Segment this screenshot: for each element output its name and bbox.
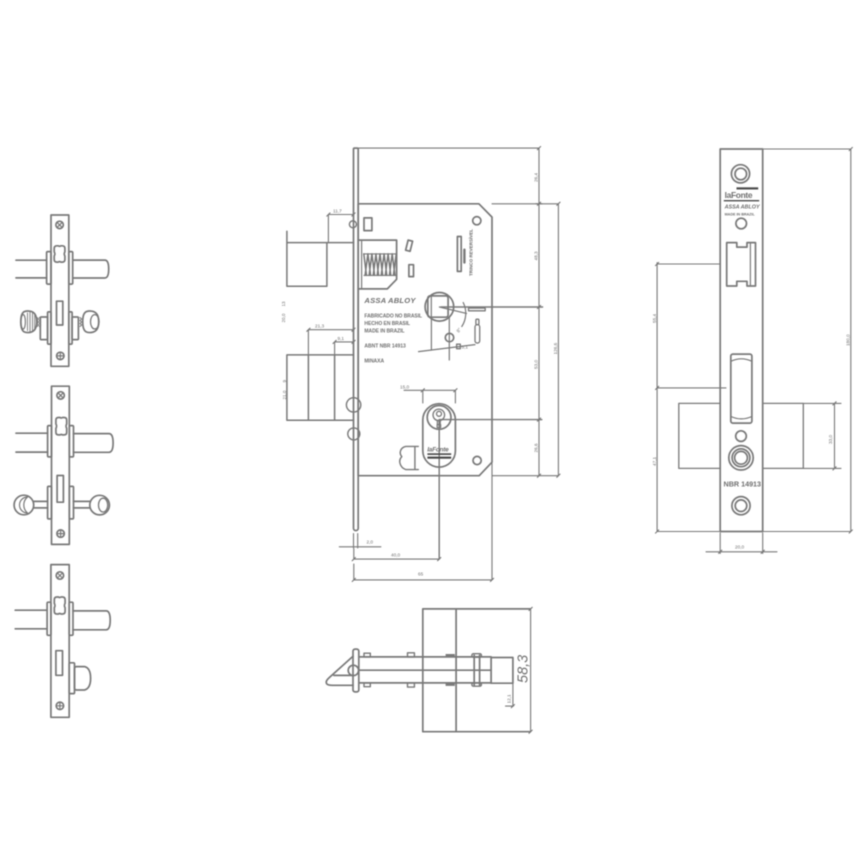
- svg-text:65: 65: [418, 571, 424, 576]
- svg-text:9: 9: [282, 380, 287, 383]
- svg-text:ASSA ABLOY: ASSA ABLOY: [724, 204, 760, 210]
- svg-text:12,1: 12,1: [506, 694, 511, 704]
- svg-text:9,1: 9,1: [338, 336, 345, 341]
- svg-text:FABRICADO NO BRASIL: FABRICADO NO BRASIL: [364, 314, 422, 320]
- svg-text:15,0: 15,0: [400, 384, 410, 389]
- svg-text:48,3: 48,3: [534, 251, 539, 261]
- svg-text:MADE IN BRAZIL: MADE IN BRAZIL: [725, 212, 756, 216]
- svg-text:laFonte: laFonte: [427, 447, 449, 454]
- svg-text:26,4: 26,4: [534, 172, 539, 182]
- svg-text:21,0: 21,0: [282, 390, 287, 399]
- svg-text:53,0: 53,0: [534, 359, 539, 369]
- svg-text:21,3: 21,3: [315, 324, 325, 329]
- svg-text:MADE IN BRAZIL: MADE IN BRAZIL: [364, 328, 404, 334]
- svg-text:11,7: 11,7: [333, 209, 342, 214]
- svg-text:NBR 14913: NBR 14913: [724, 479, 762, 488]
- svg-text:ABNT NBR 14913: ABNT NBR 14913: [364, 344, 406, 350]
- svg-text:40,0: 40,0: [391, 553, 401, 558]
- svg-text:HECHO EN BRASIL: HECHO EN BRASIL: [364, 321, 410, 327]
- svg-text:TRINCO REVERSÍVEL: TRINCO REVERSÍVEL: [466, 229, 473, 276]
- svg-text:13: 13: [281, 301, 286, 307]
- svg-text:126,6: 126,6: [553, 342, 558, 354]
- svg-text:8°: 8°: [456, 327, 463, 334]
- svg-text:33,0: 33,0: [828, 434, 833, 444]
- svg-text:180,0: 180,0: [845, 334, 850, 346]
- svg-text:55,4: 55,4: [652, 313, 657, 323]
- svg-text:laFonte: laFonte: [725, 190, 753, 200]
- svg-text:58,3: 58,3: [516, 655, 532, 683]
- svg-text:20,0: 20,0: [281, 313, 286, 322]
- svg-text:MINAXA: MINAXA: [364, 358, 384, 364]
- svg-text:20,0: 20,0: [735, 545, 745, 550]
- svg-text:ASSA ABLOY: ASSA ABLOY: [363, 296, 416, 305]
- svg-text:47,1: 47,1: [652, 456, 657, 466]
- svg-text:26,6: 26,6: [534, 443, 539, 453]
- svg-text:2,0: 2,0: [367, 540, 374, 545]
